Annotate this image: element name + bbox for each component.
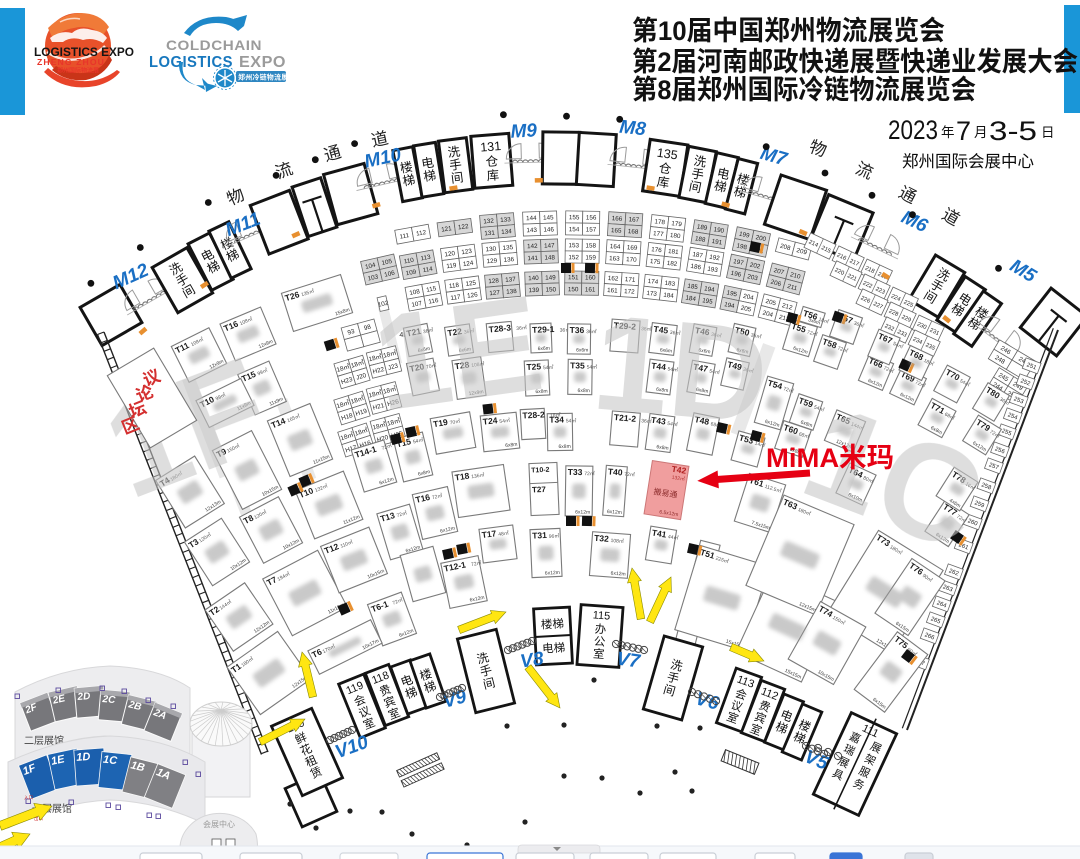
svg-text:163: 163 — [609, 255, 620, 263]
svg-text:152: 152 — [568, 254, 579, 261]
svg-text:日: 日 — [1041, 125, 1055, 140]
svg-text:166: 166 — [611, 215, 622, 223]
svg-text:162: 162 — [608, 275, 619, 283]
svg-text:147: 147 — [544, 242, 555, 249]
svg-text:仓: 仓 — [485, 154, 499, 169]
svg-text:2D: 2D — [76, 691, 91, 703]
svg-text:LOGISTICS EXPO: LOGISTICS EXPO — [34, 45, 134, 59]
svg-text:149: 149 — [545, 274, 556, 281]
svg-text:156: 156 — [586, 214, 597, 221]
svg-text:年: 年 — [941, 125, 955, 140]
svg-text:T27: T27 — [532, 485, 547, 495]
svg-text:130: 130 — [485, 245, 497, 253]
svg-text:144: 144 — [526, 215, 537, 222]
svg-text:167: 167 — [628, 216, 639, 224]
svg-text:公: 公 — [593, 635, 606, 649]
svg-text:6x12m: 6x12m — [545, 570, 560, 577]
svg-text:160: 160 — [585, 274, 596, 281]
svg-text:2023: 2023 — [888, 115, 938, 145]
svg-text:170: 170 — [626, 256, 637, 264]
svg-text:175: 175 — [649, 258, 661, 266]
svg-text:6x8m: 6x8m — [558, 444, 570, 450]
svg-text:121: 121 — [441, 225, 453, 233]
svg-text:室: 室 — [593, 647, 605, 662]
svg-text:155: 155 — [569, 214, 580, 221]
svg-text:会展中心: 会展中心 — [203, 819, 235, 829]
svg-text:120: 120 — [444, 250, 456, 258]
svg-text:161: 161 — [585, 286, 596, 293]
svg-text:库: 库 — [486, 167, 500, 183]
svg-text:168: 168 — [628, 228, 639, 236]
svg-text:119: 119 — [446, 262, 457, 270]
svg-text:T10-2: T10-2 — [531, 467, 550, 475]
svg-text:1D: 1D — [76, 751, 91, 764]
svg-text:电梯: 电梯 — [542, 641, 566, 655]
svg-text:T32: T32 — [594, 533, 610, 544]
svg-text:148: 148 — [544, 254, 555, 261]
svg-text:18㎡: 18㎡ — [550, 411, 561, 419]
svg-text:154: 154 — [569, 226, 580, 233]
svg-text:123: 123 — [461, 248, 473, 256]
svg-text:132: 132 — [483, 218, 495, 226]
svg-text:108㎡: 108㎡ — [610, 537, 624, 545]
svg-text:169: 169 — [627, 244, 638, 252]
svg-text:141: 141 — [527, 255, 538, 262]
svg-text:6x8m: 6x8m — [505, 442, 518, 449]
svg-text:第2届河南邮政快递展暨快递业发展大会: 第2届河南邮政快递展暨快递业发展大会 — [632, 47, 1078, 77]
svg-text:6x12m: 6x12m — [610, 571, 625, 578]
svg-text:T35: T35 — [570, 360, 585, 370]
svg-text:177: 177 — [653, 230, 665, 238]
svg-text:133: 133 — [500, 216, 512, 224]
svg-text:梯: 梯 — [401, 173, 416, 189]
svg-text:135: 135 — [502, 244, 514, 252]
svg-text:124: 124 — [463, 260, 475, 268]
svg-text:96㎡: 96㎡ — [549, 532, 560, 539]
svg-text:T31: T31 — [532, 530, 547, 541]
svg-text:6x12m: 6x12m — [607, 509, 622, 516]
svg-text:145: 145 — [543, 214, 554, 221]
svg-text:164: 164 — [610, 243, 621, 251]
svg-text:6x8m: 6x8m — [578, 388, 590, 394]
svg-text:COLDCHAIN: COLDCHAIN — [166, 37, 262, 53]
svg-text:180: 180 — [670, 232, 682, 240]
svg-text:131: 131 — [484, 230, 496, 238]
svg-text:1E: 1E — [365, 266, 551, 440]
svg-text:36㎡: 36㎡ — [586, 328, 597, 335]
svg-text:146: 146 — [543, 226, 554, 233]
svg-text:115: 115 — [592, 609, 610, 622]
svg-text:T18: T18 — [454, 471, 470, 483]
svg-text:梯: 梯 — [422, 168, 437, 184]
svg-text:72㎡: 72㎡ — [584, 470, 595, 477]
svg-text:6x6m: 6x6m — [576, 347, 588, 353]
svg-text:174: 174 — [647, 278, 659, 286]
svg-text:136: 136 — [503, 256, 515, 264]
svg-text:T17: T17 — [481, 528, 497, 540]
svg-text:办: 办 — [594, 622, 607, 637]
svg-text:2C: 2C — [101, 694, 116, 706]
svg-text:150: 150 — [545, 286, 556, 293]
svg-text:郑州国际会展中心: 郑州国际会展中心 — [902, 152, 1034, 171]
svg-text:郑州国际物流展: 郑州国际物流展 — [57, 67, 99, 75]
svg-text:T40: T40 — [608, 466, 624, 477]
svg-text:T33: T33 — [568, 467, 583, 477]
svg-text:179: 179 — [671, 220, 683, 228]
svg-text:LOGISTICS: LOGISTICS — [149, 54, 233, 71]
svg-text:131: 131 — [480, 139, 502, 155]
svg-text:181: 181 — [668, 248, 680, 256]
svg-text:6x12m: 6x12m — [575, 509, 590, 515]
svg-text:54㎡: 54㎡ — [566, 417, 577, 424]
svg-text:142: 142 — [527, 243, 538, 250]
svg-text:134: 134 — [501, 228, 513, 236]
svg-text:157: 157 — [586, 226, 597, 233]
svg-text:143: 143 — [526, 227, 537, 234]
svg-text:ZHENG ZHOU: ZHENG ZHOU — [37, 58, 105, 67]
svg-text:165: 165 — [611, 227, 622, 235]
svg-text:129: 129 — [486, 257, 498, 265]
svg-text:54㎡: 54㎡ — [543, 364, 554, 371]
svg-text:183: 183 — [664, 280, 676, 288]
svg-text:7: 7 — [956, 116, 971, 146]
svg-text:T36: T36 — [570, 325, 585, 335]
svg-text:库: 库 — [656, 174, 671, 191]
svg-text:郑州冷链物流展: 郑州冷链物流展 — [238, 73, 288, 82]
svg-text:间: 间 — [688, 179, 703, 195]
svg-text:1D: 1D — [587, 285, 773, 452]
svg-text:间: 间 — [450, 170, 464, 185]
svg-text:122: 122 — [458, 223, 470, 231]
svg-text:楼梯: 楼梯 — [541, 616, 565, 631]
svg-text:MiMA米玛: MiMA米玛 — [766, 443, 894, 473]
svg-text:M8: M8 — [618, 117, 647, 141]
svg-text:第8届郑州国际冷链物流展览会: 第8届郑州国际冷链物流展览会 — [632, 75, 976, 105]
svg-text:EXPO: EXPO — [239, 54, 286, 71]
svg-text:3-5: 3-5 — [989, 116, 1037, 146]
svg-text:151: 151 — [568, 274, 579, 281]
svg-text:158: 158 — [585, 242, 596, 249]
svg-text:48㎡: 48㎡ — [498, 530, 509, 538]
svg-text:月: 月 — [974, 125, 988, 140]
svg-text:72㎡: 72㎡ — [624, 471, 635, 479]
svg-text:M9: M9 — [510, 120, 538, 142]
svg-text:178: 178 — [654, 218, 666, 226]
svg-text:176: 176 — [651, 246, 663, 254]
svg-text:153: 153 — [568, 242, 579, 249]
svg-text:第10届中国郑州物流展览会: 第10届中国郑州物流展览会 — [632, 16, 945, 46]
svg-text:182: 182 — [666, 260, 678, 268]
svg-text:1C: 1C — [102, 754, 118, 768]
svg-text:150: 150 — [568, 286, 579, 293]
svg-text:159: 159 — [585, 254, 596, 261]
svg-text:171: 171 — [625, 276, 636, 284]
